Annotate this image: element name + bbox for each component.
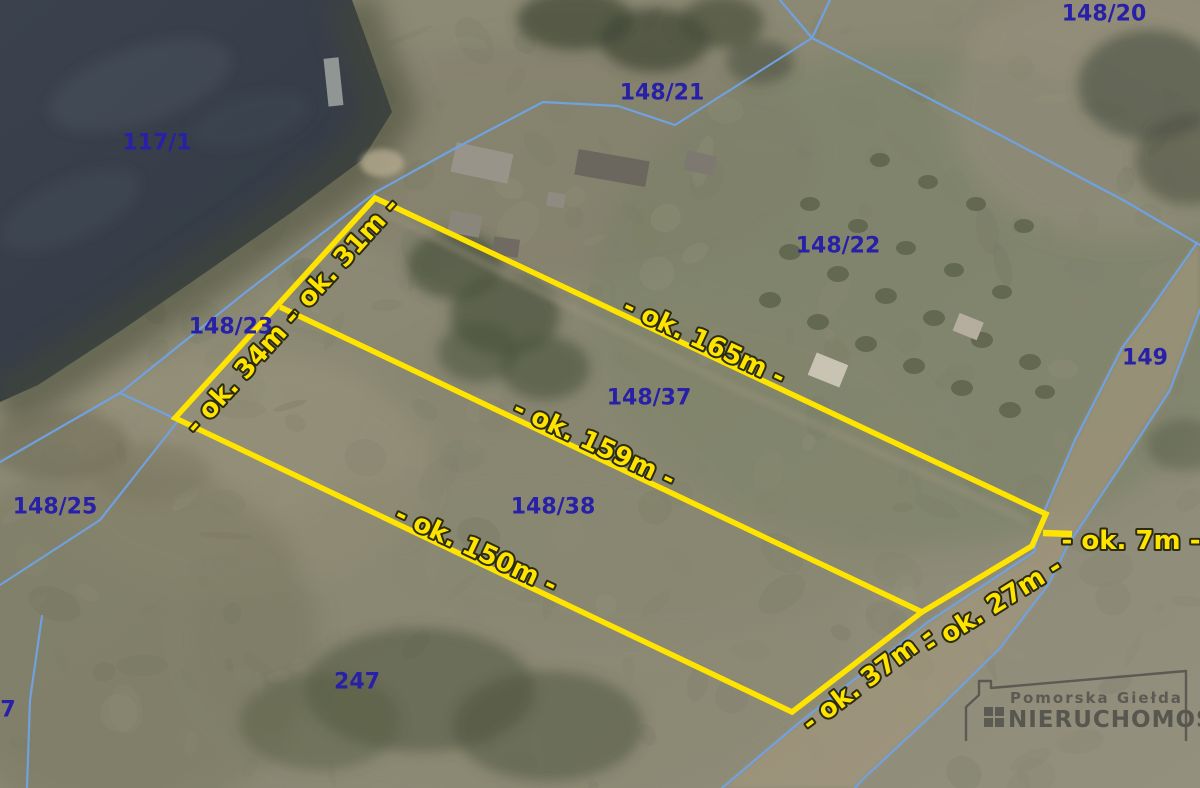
parcel-label-148-37: 148/37 xyxy=(607,386,692,411)
measurement-label-7m: - ok. 7m - xyxy=(1062,526,1200,556)
parcel-label-149: 149 xyxy=(1122,346,1168,371)
sandy-shore-spot xyxy=(360,149,404,177)
watermark-line2: NIERUCHOMOŚCI xyxy=(1008,705,1200,733)
parcel-label-148-38: 148/38 xyxy=(511,495,596,520)
parcel-label-148-20: 148/20 xyxy=(1062,2,1147,27)
photo-background xyxy=(0,0,1200,788)
parcel-label-148-21: 148/21 xyxy=(620,81,705,106)
aerial-map-image: 117/1148/21148/20148/22148/23149148/3714… xyxy=(0,0,1200,788)
parcel-label-148-22: 148/22 xyxy=(796,234,881,259)
watermark-line1: Pomorska Giełda xyxy=(1010,689,1183,707)
parcel-label-7: 7 xyxy=(0,698,15,723)
parcel-label-148-25: 148/25 xyxy=(13,495,98,520)
parcel-label-117-1: 117/1 xyxy=(122,131,191,156)
map-canvas: 117/1148/21148/20148/22148/23149148/3714… xyxy=(0,0,1200,788)
parcel-label-247: 247 xyxy=(334,670,380,695)
